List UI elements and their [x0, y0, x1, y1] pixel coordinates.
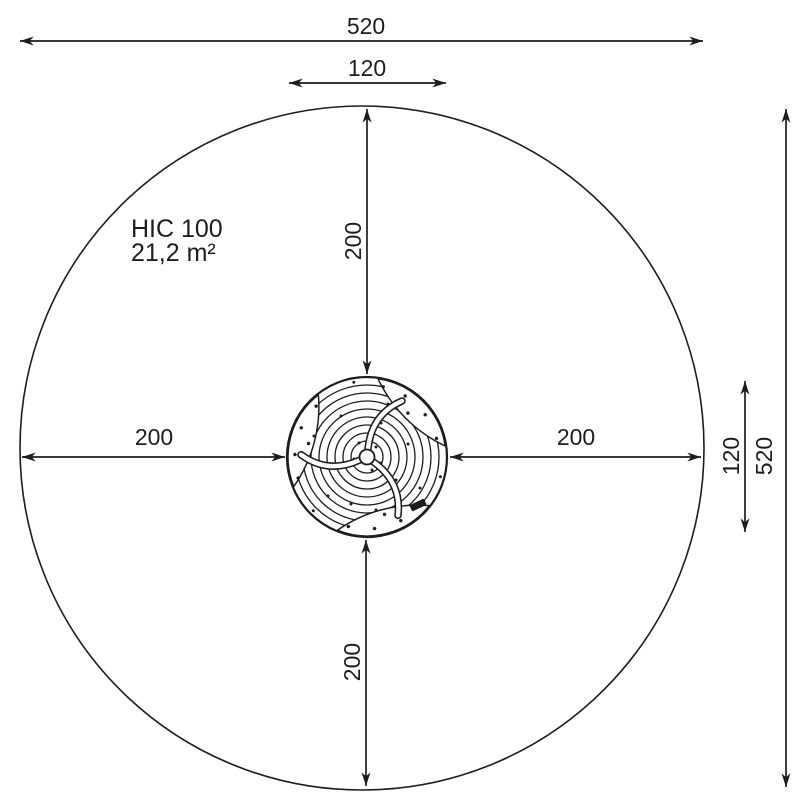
spinner-hub: [360, 450, 375, 465]
dim-radius-right: 200: [450, 424, 701, 457]
dim-radius-left: 200: [22, 424, 285, 457]
dim-radius-top-label: 200: [340, 222, 366, 260]
dim-outer-width-label: 520: [347, 13, 385, 39]
dim-outer-height-label: 520: [751, 437, 777, 475]
area-label: 21,2 m²: [131, 239, 216, 267]
dim-inner-height: 120: [718, 381, 745, 532]
spinner-top-view: [260, 377, 447, 564]
dim-radius-left-label: 200: [135, 424, 173, 450]
dim-radius-bottom-label: 200: [339, 643, 365, 681]
dim-outer-height: 520: [751, 109, 786, 787]
dim-radius-right-label: 200: [557, 424, 595, 450]
spinner-safety-zone-diagram: 520 120 200 200 200 200 120 520 HIC 100 …: [0, 0, 800, 800]
dim-inner-width-label: 120: [348, 55, 386, 81]
dim-outer-width: 520: [20, 13, 703, 41]
dim-inner-width: 120: [289, 55, 446, 83]
hic-annotation: HIC 100 21,2 m²: [131, 215, 223, 267]
dim-radius-top: 200: [340, 109, 367, 374]
safety-zone-boundary: [20, 106, 704, 790]
dim-inner-height-label: 120: [718, 437, 744, 475]
diagram-canvas: 520 120 200 200 200 200 120 520 HIC 100 …: [0, 0, 800, 800]
dim-radius-bottom: 200: [339, 540, 366, 786]
